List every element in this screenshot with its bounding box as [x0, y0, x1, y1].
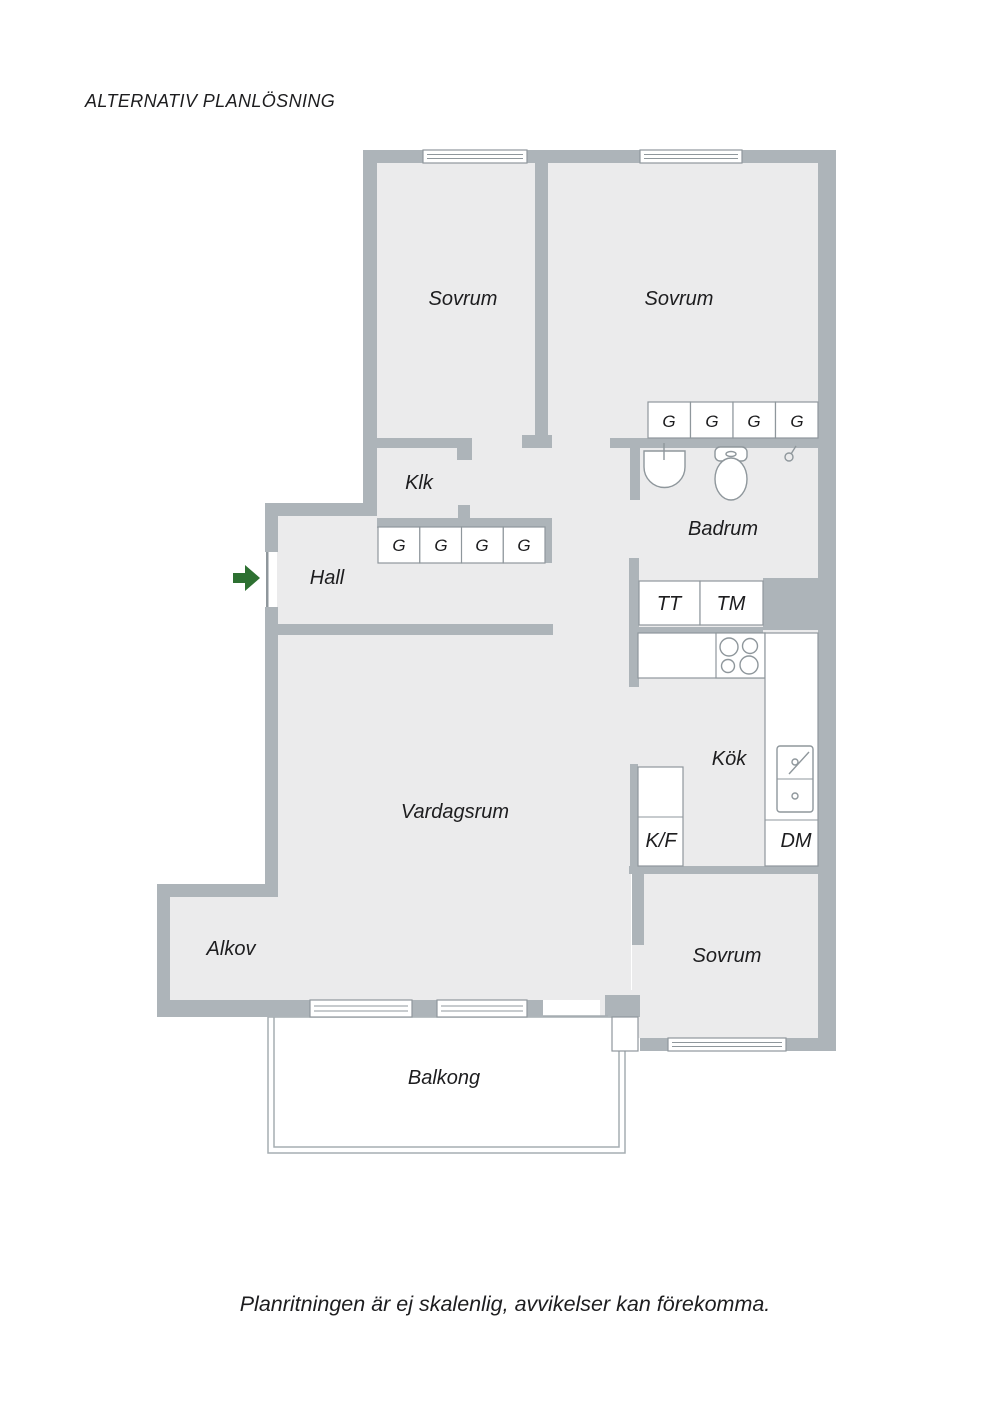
wall-bedroom3-bottom-right: [786, 1038, 836, 1051]
room-label-bedroom1: Sovrum: [429, 288, 498, 310]
wardrobe-label: G: [662, 412, 675, 431]
wall-bedroom3-left: [632, 874, 644, 945]
entrance-arrow-icon: [233, 565, 260, 591]
wall-outer-left-top: [363, 163, 377, 505]
laundry-units: TT TM: [639, 581, 763, 625]
wall-fridge-left-strip: [630, 764, 638, 868]
floorplan-drawing: ALTERNATIV PLANLÖSNING: [0, 0, 992, 1404]
hall-wardrobes: G G G G: [378, 527, 545, 563]
toilet-icon: [715, 447, 747, 500]
bedroom2-wardrobes: G G G G: [648, 402, 818, 438]
room-label-living-room: Vardagsrum: [401, 801, 509, 823]
wardrobe-label: G: [517, 536, 530, 555]
wall-alcove-left: [157, 897, 170, 1017]
window-living-left: [310, 1000, 412, 1017]
balcony-door-leaf: [612, 1017, 638, 1051]
room-label-bathroom: Badrum: [688, 518, 758, 540]
wardrobe-label: G: [747, 412, 760, 431]
wall-hall-left-upper: [265, 516, 278, 552]
room-label-bedroom3: Sovrum: [693, 945, 762, 967]
room-label-kitchen: Kök: [712, 748, 747, 770]
wardrobe-label: G: [434, 536, 447, 555]
wall-bedroom-divider: [535, 163, 548, 435]
dishwasher-label: DM: [780, 830, 811, 852]
wall-hall-top: [265, 503, 377, 516]
wall-balcony-door-block: [605, 995, 640, 1017]
room-label-alcove: Alkov: [206, 938, 257, 960]
wall-kitchen-bottom: [629, 866, 836, 874]
wardrobe-label: G: [705, 412, 718, 431]
floorplan-page: ALTERNATIV PLANLÖSNING: [0, 0, 992, 1404]
window-living-right: [437, 1000, 527, 1017]
room-label-balcony: Balkong: [408, 1067, 480, 1089]
room-label-bedroom2: Sovrum: [645, 288, 714, 310]
wall-hall-living-divider: [278, 624, 553, 635]
wall-alcove-top: [157, 884, 278, 897]
page-title: ALTERNATIV PLANLÖSNING: [84, 91, 335, 111]
wardrobe-label: G: [790, 412, 803, 431]
wall-window-pier: [412, 1000, 437, 1017]
wall-bedroom3-bottom-left: [640, 1038, 668, 1051]
wall-bedroom1-door-jamb: [457, 438, 472, 460]
fridge-freezer-label: K/F: [645, 830, 678, 852]
washer-label: TM: [717, 593, 746, 615]
wall-bedroom-divider-foot: [522, 435, 552, 448]
wardrobe-label: G: [392, 536, 405, 555]
window-bedroom1: [423, 150, 527, 163]
wall-bathroom-left-upper: [630, 448, 640, 500]
wardrobe-label: G: [475, 536, 488, 555]
room-label-closet: Klk: [405, 472, 434, 494]
wall-block-right-of-laundry: [763, 578, 818, 630]
room-label-hall: Hall: [310, 567, 345, 589]
dryer-label: TT: [657, 593, 683, 615]
wall-alcove-bottom: [157, 1000, 310, 1017]
disclaimer-caption: Planritningen är ej skalenlig, avvikelse…: [240, 1292, 771, 1316]
wall-closet-door-jamb: [458, 505, 470, 518]
entrance-door-threshold: [266, 552, 269, 607]
wall-hall-wardrobe-cap: [545, 518, 552, 563]
window-bedroom3: [668, 1038, 786, 1051]
wall-window-pier-end: [527, 1000, 543, 1017]
wall-outer-right: [818, 150, 836, 1051]
wall-left-middle: [265, 607, 278, 887]
kitchen-sink-icon: [777, 746, 813, 812]
window-bedroom2: [640, 150, 742, 163]
